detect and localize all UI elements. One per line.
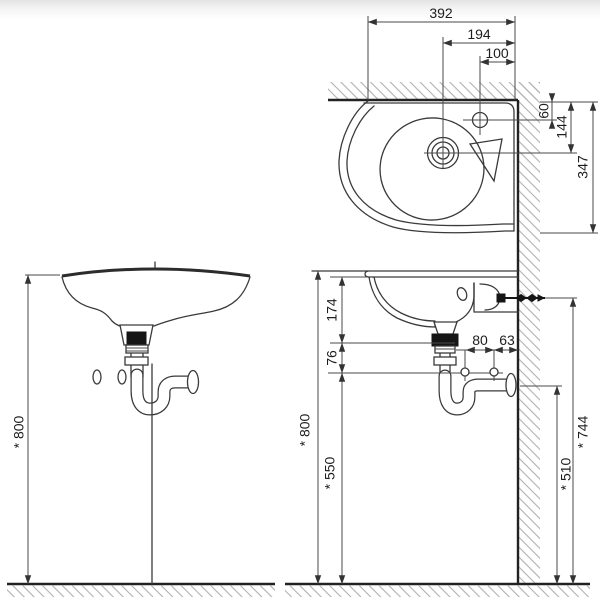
dim-label-144: 144: [554, 115, 570, 139]
drain-assembly-side: [432, 322, 458, 377]
dim-label-550: * 550: [322, 456, 338, 489]
p-trap-side: [445, 374, 516, 410]
tap-hole-side: [456, 286, 469, 301]
dim-front-rim-height: * 800: [11, 275, 60, 584]
dim-side-rim-height: * 800: [297, 271, 318, 584]
washbasin-diagram: 392 194 100 60 144 347: [0, 0, 600, 600]
p-trap-front: [137, 371, 199, 410]
dim-label-392: 392: [429, 5, 453, 21]
technical-drawing-sheet: 392 194 100 60 144 347: [0, 0, 600, 600]
dim-label-744: * 744: [575, 415, 591, 448]
plan-view: [339, 101, 577, 233]
fixing-hole-side-2: [490, 368, 498, 376]
dim-label-front-800: * 800: [11, 415, 27, 448]
dim-label-63: 63: [499, 332, 515, 348]
dim-rim-to-nut: 174: [324, 277, 455, 343]
dim-label-194: 194: [467, 26, 491, 42]
basin-front-rim: [62, 269, 250, 276]
dim-label-510: * 510: [558, 457, 574, 490]
dim-label-60: 60: [536, 103, 552, 119]
wall-outlet-flange-side: [506, 374, 516, 397]
dim-overall-depth: 347: [575, 102, 593, 233]
basin-side-inner-profile: [374, 277, 435, 321]
fixing-hole-front-right: [118, 370, 126, 384]
dim-drain-offset: 144: [554, 102, 571, 153]
dim-bolt-height: * 744: [545, 298, 591, 584]
basin-front-left-profile: [62, 277, 120, 326]
basin-side-rim-bottom: [365, 271, 518, 277]
drain-plan: [424, 138, 577, 169]
dim-label-347: 347: [575, 155, 591, 179]
dim-label-80: 80: [472, 332, 488, 348]
wall-hatch-top: [328, 82, 540, 100]
bowl-plan: [371, 108, 494, 229]
dim-nut-to-holes: 76: [324, 343, 342, 373]
basin-plan-wall-edges: [364, 103, 514, 231]
dim-label-100: 100: [485, 45, 509, 61]
basin-side-front-profile: [369, 277, 435, 327]
wall-hatch-right: [518, 82, 540, 584]
wall-outlet-flange-front: [188, 371, 199, 394]
dim-label-174: 174: [324, 298, 340, 322]
front-view: [62, 262, 250, 584]
basin-plan-inner-rim: [347, 106, 513, 225]
fixing-hole-front-left: [93, 370, 101, 384]
dim-label-76: 76: [324, 350, 340, 366]
dim-holes-height: * 550: [322, 373, 342, 584]
dim-hole-spacing: 80 63: [456, 332, 518, 350]
corner-shelf-triangle: [470, 139, 502, 181]
floor-hatch-left: [7, 585, 275, 597]
floor-right: [285, 584, 590, 597]
dim-label-side-800: * 800: [297, 413, 313, 446]
fixing-hole-side-1: [461, 368, 469, 376]
floor-hatch-right: [285, 585, 590, 597]
basin-front-right-profile: [154, 277, 250, 326]
mounting-bolt-icon: [497, 294, 545, 302]
floor-left: [7, 584, 275, 597]
